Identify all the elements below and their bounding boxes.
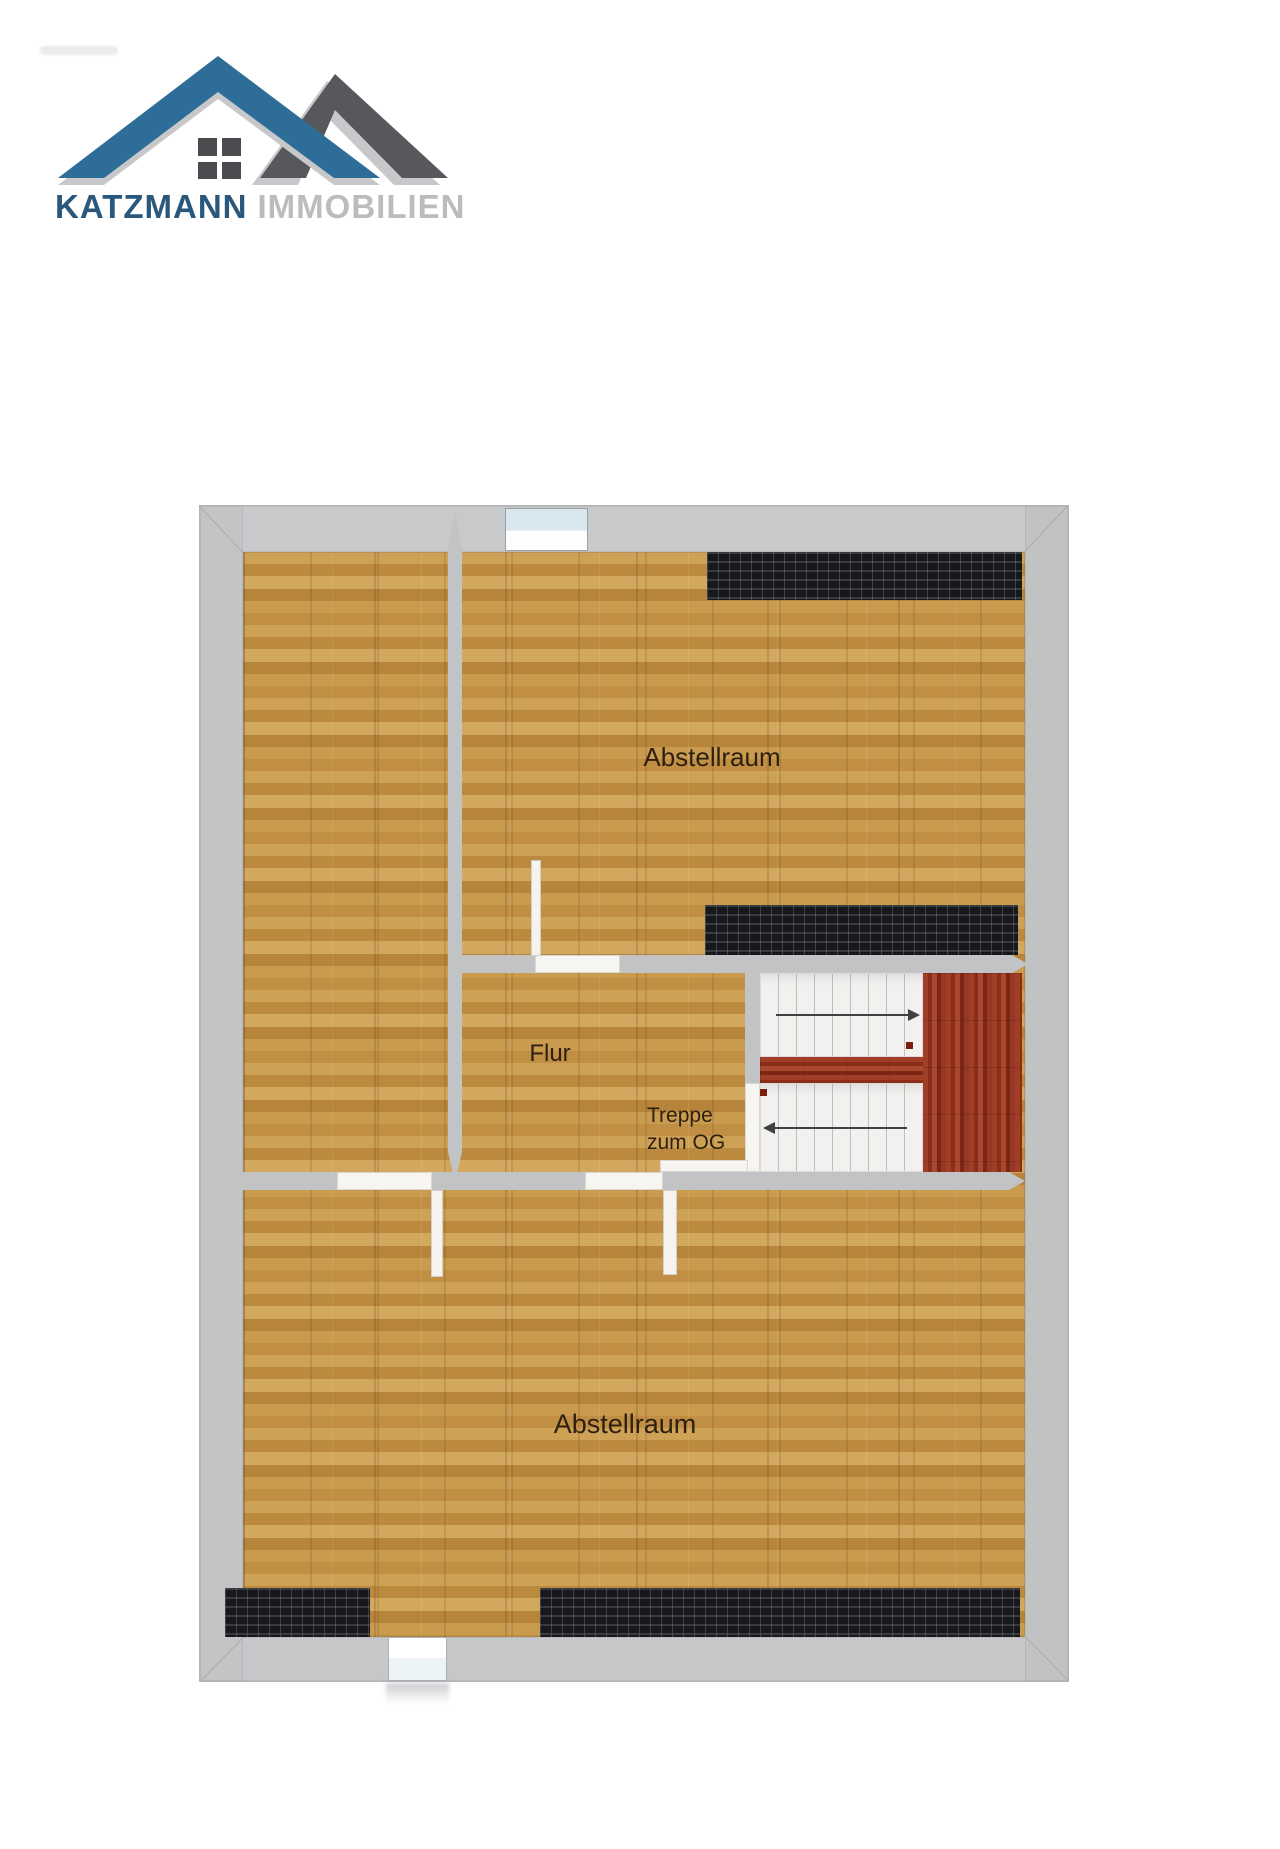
stairs-up-arrow-icon [775, 1009, 921, 1021]
knee-wall-hatch-top [707, 552, 1022, 600]
stairs-mid-landing-strip [760, 1057, 923, 1083]
logo-window-icon [193, 133, 245, 184]
knee-wall-hatch-bottom-right [540, 1588, 1020, 1637]
brand-name-secondary: IMMOBILIEN [258, 188, 466, 226]
room-label-abstellraum-bottom: Abstellraum [554, 1409, 697, 1440]
floorplan: Abstellraum Flur Treppe zum OG Abstellra… [200, 506, 1068, 1681]
knee-wall-hatch-middle [705, 905, 1018, 955]
stairs-marker-dot-upper [906, 1042, 913, 1049]
stairs-landing [923, 973, 1022, 1172]
interior-wall-vertical [448, 508, 462, 1182]
outer-wall-left [200, 506, 243, 1681]
door-opening-left-room [337, 1172, 432, 1190]
stairs-down-arrow-icon [762, 1122, 908, 1134]
room-label-flur: Flur [529, 1040, 570, 1068]
door-opening-abstellraum-top [535, 955, 620, 973]
knee-wall-hatch-bottom-left [225, 1588, 370, 1637]
logo-roof-icon [28, 26, 458, 206]
outer-wall-right [1025, 506, 1068, 1681]
stairs-marker-dot-lower [760, 1089, 767, 1096]
stairs-entry-opening [745, 1083, 760, 1172]
outer-wall-bottom [200, 1637, 1068, 1681]
door-leaf-abstellraum-top [531, 860, 541, 956]
door-leaf-flur [663, 1190, 677, 1275]
door-leaf-left-room [431, 1190, 443, 1277]
room-label-abstellraum-top: Abstellraum [643, 742, 780, 773]
stairs-label-line1: Treppe [647, 1102, 725, 1129]
outer-wall-top [200, 506, 1068, 552]
stairs-label: Treppe zum OG [647, 1102, 725, 1156]
stairs-entry-threshold [660, 1160, 748, 1172]
stairs-label-line2: zum OG [647, 1129, 725, 1156]
brand-wordmark: KATZMANN IMMOBILIEN [55, 188, 466, 226]
window-top [505, 508, 588, 551]
brand-name-primary: KATZMANN [55, 188, 248, 226]
stairs-left-wall [745, 973, 760, 1083]
door-opening-flur [585, 1172, 663, 1190]
window-bottom-shadow [386, 1683, 449, 1703]
window-bottom [388, 1637, 447, 1681]
